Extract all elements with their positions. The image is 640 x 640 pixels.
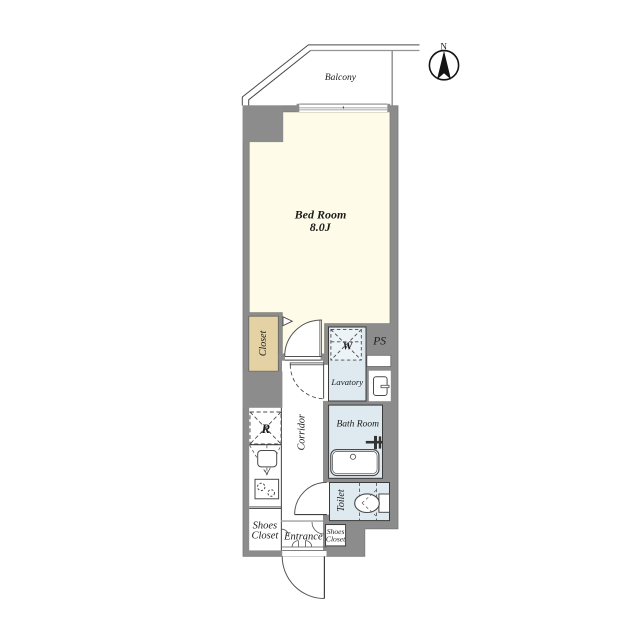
svg-text:Bath Room: Bath Room [336, 419, 379, 429]
svg-text:Lavatory: Lavatory [330, 377, 363, 387]
svg-text:Closet: Closet [258, 330, 269, 356]
svg-text:Entrance: Entrance [283, 532, 323, 543]
svg-text:Corridor: Corridor [297, 414, 308, 450]
svg-text:W: W [343, 340, 354, 352]
svg-text:Closet: Closet [251, 530, 279, 541]
svg-text:Closet: Closet [326, 535, 346, 544]
svg-text:R: R [260, 421, 270, 436]
svg-text:Toilet: Toilet [336, 489, 347, 512]
svg-text:8.0J: 8.0J [310, 220, 332, 234]
svg-text:PS: PS [372, 336, 386, 348]
svg-text:Balcony: Balcony [325, 73, 357, 83]
svg-text:N: N [440, 42, 447, 52]
